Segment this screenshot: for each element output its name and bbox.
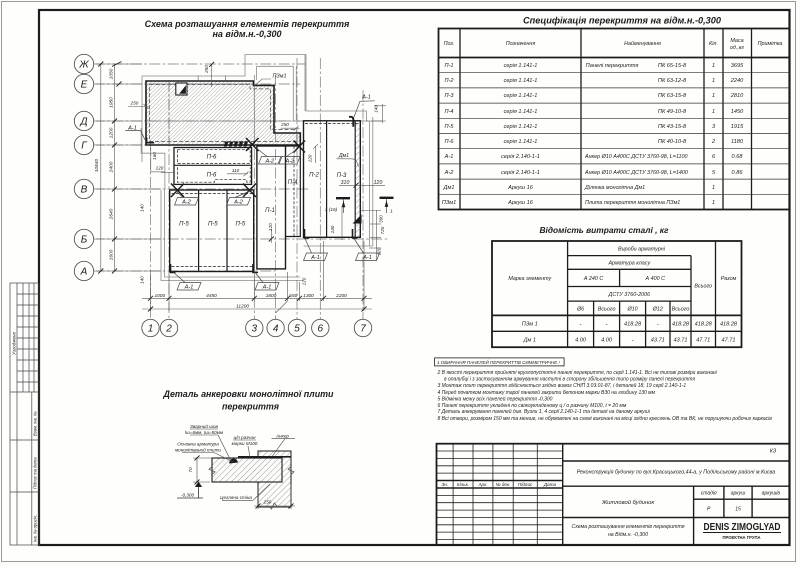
svg-text:250: 250 bbox=[280, 122, 289, 127]
svg-text:серія 2.140-1-1: серія 2.140-1-1 bbox=[501, 170, 540, 176]
svg-text:А-1: А-1 bbox=[262, 285, 272, 291]
svg-text:ПРОЕКТНА ГРУПА: ПРОЕКТНА ГРУПА bbox=[723, 535, 761, 540]
svg-text:1: 1 bbox=[712, 93, 715, 99]
svg-text:А-2: А-2 bbox=[444, 170, 455, 176]
svg-text:390: 390 bbox=[379, 215, 384, 223]
svg-text:серія 1.141-1: серія 1.141-1 bbox=[504, 93, 538, 99]
svg-text:43.71: 43.71 bbox=[651, 338, 665, 344]
svg-text:ПК 49-10-8: ПК 49-10-8 bbox=[658, 109, 687, 115]
svg-text:1300: 1300 bbox=[303, 293, 314, 299]
svg-text:ДСТУ 3760-2006: ДСТУ 3760-2006 bbox=[608, 292, 651, 298]
svg-text:6 Панелі перекриття укладені: 6 Панелі перекриття укладені по свіжоукл… bbox=[438, 403, 627, 409]
svg-text:П-1: П-1 bbox=[444, 63, 453, 69]
svg-text:№ док.: № док. bbox=[496, 482, 511, 487]
svg-text:4450: 4450 bbox=[206, 293, 217, 299]
svg-text:П-6: П-6 bbox=[207, 173, 217, 179]
svg-text:4 Перед початком монтажу таро: 4 Перед початком монтажу тарої панелей з… bbox=[438, 389, 656, 396]
svg-text:160: 160 bbox=[152, 152, 157, 160]
svg-text:од.,кг: од.,кг bbox=[730, 45, 745, 51]
svg-text:110: 110 bbox=[232, 168, 240, 173]
svg-text:4.00: 4.00 bbox=[575, 338, 587, 344]
svg-text:3: 3 bbox=[252, 324, 258, 335]
svg-text:П-2: П-2 bbox=[444, 78, 454, 84]
svg-text:А-2: А-2 bbox=[181, 200, 192, 206]
svg-text:140: 140 bbox=[140, 204, 145, 212]
svg-text:1: 1 bbox=[712, 200, 715, 206]
svg-text:Арк.: Арк. bbox=[477, 482, 487, 487]
svg-text:ПК 40-10-8: ПК 40-10-8 bbox=[658, 139, 687, 145]
svg-text:418.28: 418.28 bbox=[624, 322, 642, 328]
svg-text:А 240 С: А 240 С bbox=[583, 276, 604, 282]
svg-text:1: 1 bbox=[712, 109, 715, 115]
svg-text:-: - bbox=[632, 338, 634, 344]
svg-text:120: 120 bbox=[301, 277, 306, 285]
svg-text:-: - bbox=[606, 322, 608, 328]
svg-text:Реконструкція будинку по вул.К: Реконструкція будинку по вул.Красицького… bbox=[577, 469, 776, 476]
svg-text:монолітваной плити: монолітваной плити bbox=[175, 447, 221, 453]
svg-text:в опалубці і з застосуванням а: в опалубці і з застосуванням армування н… bbox=[444, 377, 695, 383]
svg-text:70: 70 bbox=[188, 467, 193, 473]
svg-text:А-2: А-2 bbox=[284, 159, 295, 165]
svg-text:Ø10: Ø10 bbox=[626, 307, 637, 313]
svg-text:120: 120 bbox=[156, 166, 164, 171]
svg-text:ПЗм 1: ПЗм 1 bbox=[522, 322, 538, 328]
svg-text:на відм.н.-0,300: на відм.н.-0,300 bbox=[212, 29, 281, 39]
svg-text:1 ОБИРАННЯ ПАНЕЛЕЙ ПЕРЕКРИТТІ: 1 ОБИРАННЯ ПАНЕЛЕЙ ПЕРЕКРИТТІВ СИММЕТРИЧ… bbox=[437, 358, 561, 365]
svg-text:Інв. № оригін.: Інв. № оригін. bbox=[33, 515, 38, 542]
svg-text:П-5: П-5 bbox=[444, 124, 454, 130]
svg-text:Маса: Маса bbox=[730, 38, 743, 44]
svg-text:120: 120 bbox=[268, 223, 273, 231]
svg-text:2640: 2640 bbox=[108, 208, 114, 220]
svg-text:1600: 1600 bbox=[108, 249, 114, 260]
svg-text:В: В bbox=[81, 185, 88, 196]
svg-text:47.71: 47.71 bbox=[722, 338, 736, 344]
svg-text:А: А bbox=[80, 267, 88, 278]
svg-text:П-5: П-5 bbox=[236, 222, 246, 228]
svg-text:8 Всі отвори, розміром 150 мм: 8 Всі отвори, розміром 150 мм та менше, … bbox=[438, 416, 773, 422]
svg-text:120: 120 bbox=[377, 247, 382, 255]
svg-text:ПК 63-12-8: ПК 63-12-8 bbox=[658, 78, 687, 84]
svg-text:А-1: А-1 bbox=[361, 95, 371, 101]
svg-text:3695: 3695 bbox=[731, 63, 744, 69]
svg-text:Схема розташуання елементів пе: Схема розташуання елементів перекриття bbox=[145, 19, 350, 29]
svg-text:1: 1 bbox=[390, 209, 393, 215]
svg-text:Примітка: Примітка bbox=[758, 41, 783, 47]
svg-text:lш=6мм, Іш=50мм: lш=6мм, Іш=50мм bbox=[185, 430, 224, 435]
svg-text:7 Деталь анкерування панелей: 7 Деталь анкерування панелей див. Вузли … bbox=[438, 408, 651, 415]
svg-text:серія 2.140-1-1: серія 2.140-1-1 bbox=[501, 154, 540, 160]
svg-text:П-6: П-6 bbox=[444, 139, 454, 145]
svg-text:0.86: 0.86 bbox=[732, 170, 744, 176]
svg-text:1000: 1000 bbox=[154, 293, 165, 299]
svg-text:5: 5 bbox=[294, 324, 300, 335]
svg-text:0.68: 0.68 bbox=[732, 154, 744, 160]
svg-text:1050: 1050 bbox=[108, 68, 114, 79]
svg-text:2200: 2200 bbox=[335, 293, 347, 299]
svg-text:6: 6 bbox=[318, 324, 324, 335]
svg-text:1: 1 bbox=[712, 78, 715, 84]
svg-text:Разом: Разом bbox=[721, 276, 737, 282]
svg-text:Дм 1: Дм 1 bbox=[523, 338, 536, 344]
svg-text:Зварний шов: Зварний шов bbox=[190, 423, 219, 429]
svg-text:аркуш: аркуш bbox=[731, 491, 746, 497]
svg-text:47.71: 47.71 bbox=[696, 338, 710, 344]
svg-text:Житловой будинок: Житловой будинок bbox=[601, 499, 655, 506]
svg-text:П-4: П-4 bbox=[288, 180, 298, 186]
svg-text:Б: Б bbox=[81, 235, 88, 246]
svg-text:серія 1.141-1: серія 1.141-1 bbox=[504, 63, 538, 69]
svg-text:1 (16): 1 (16) bbox=[325, 207, 338, 213]
svg-text:Поз.: Поз. bbox=[444, 41, 455, 47]
svg-text:А-1: А-1 bbox=[184, 285, 194, 291]
svg-text:П-2: П-2 bbox=[309, 173, 319, 179]
svg-text:П-5: П-5 bbox=[208, 222, 218, 228]
svg-text:А-2: А-2 bbox=[264, 159, 275, 165]
svg-text:ПЗм1: ПЗм1 bbox=[442, 200, 456, 206]
svg-text:1: 1 bbox=[712, 185, 715, 191]
svg-text:Ж: Ж bbox=[78, 60, 89, 71]
svg-text:418.28: 418.28 bbox=[720, 322, 738, 328]
svg-text:43.71: 43.71 bbox=[674, 338, 688, 344]
svg-text:Позначення: Позначення bbox=[506, 41, 536, 47]
svg-text:DENIS ZIMOGLYAD: DENIS ZIMOGLYAD bbox=[704, 522, 781, 533]
svg-text:Дм1: Дм1 bbox=[443, 185, 455, 191]
svg-text:-: - bbox=[580, 322, 582, 328]
svg-text:серія 1.141-1: серія 1.141-1 bbox=[504, 139, 538, 145]
svg-text:Схема розташування елементів п: Схема розташування елементів перекриття bbox=[571, 524, 684, 530]
svg-text:Всього: Всього bbox=[598, 307, 616, 313]
svg-text:Цегляна стіна: Цегляна стіна bbox=[220, 495, 252, 500]
svg-text:3 Монтаж плит перекриття здій: 3 Монтаж плит перекриття здійснюється зг… bbox=[438, 382, 687, 389]
svg-text:А-1: А-1 bbox=[362, 255, 372, 261]
svg-text:250: 250 bbox=[130, 101, 139, 106]
svg-text:Узгоджено: Узгоджено bbox=[12, 331, 17, 355]
svg-text:650: 650 bbox=[289, 293, 297, 299]
svg-text:-0,300: -0,300 bbox=[181, 493, 194, 498]
svg-text:10840: 10840 bbox=[94, 159, 100, 173]
svg-text:А-1: А-1 bbox=[444, 154, 454, 160]
svg-text:1200: 1200 bbox=[108, 127, 114, 138]
svg-text:Основна арматура: Основна арматура bbox=[177, 442, 219, 447]
svg-text:720: 720 bbox=[380, 226, 385, 234]
svg-text:418.28: 418.28 bbox=[695, 322, 713, 328]
svg-text:140: 140 bbox=[330, 225, 335, 233]
svg-text:А-2: А-2 bbox=[233, 200, 244, 206]
svg-text:Е: Е bbox=[81, 80, 88, 91]
svg-text:аркушів: аркушів bbox=[762, 491, 781, 497]
svg-text:2: 2 bbox=[165, 324, 172, 335]
svg-text:Арматура класу: Арматура класу bbox=[607, 261, 650, 267]
svg-text:Ділянка монолітна Дм1: Ділянка монолітна Дм1 bbox=[584, 185, 645, 191]
svg-text:Марка элементу: Марка элементу bbox=[508, 276, 551, 282]
svg-text:11200: 11200 bbox=[236, 304, 249, 310]
svg-text:Зн.: Зн. bbox=[441, 482, 448, 487]
svg-text:Аркуш 16: Аркуш 16 bbox=[507, 185, 534, 191]
svg-text:Деталь анкеровки монолітної пл: Деталь анкеровки монолітної плити bbox=[163, 389, 334, 399]
svg-text:Специфікація перекриття на від: Специфікація перекриття на відм.н.-0,300 bbox=[523, 16, 722, 26]
svg-text:П-3: П-3 bbox=[337, 173, 347, 179]
svg-text:КЗ: КЗ bbox=[770, 449, 777, 455]
svg-text:П-6: П-6 bbox=[207, 155, 217, 161]
svg-text:Взам. інв. №: Взам. інв. № bbox=[33, 411, 38, 436]
svg-text:250: 250 bbox=[204, 65, 209, 74]
svg-text:Дата: Дата bbox=[543, 482, 557, 487]
svg-text:Д: Д bbox=[79, 117, 87, 128]
svg-text:1: 1 bbox=[712, 63, 715, 69]
svg-text:1915: 1915 bbox=[731, 124, 744, 130]
svg-text:2240: 2240 bbox=[730, 78, 744, 84]
svg-text:140: 140 bbox=[139, 276, 144, 284]
svg-text:серія 1.141-1: серія 1.141-1 bbox=[504, 78, 538, 84]
svg-text:2400: 2400 bbox=[108, 161, 114, 173]
svg-text:1180: 1180 bbox=[731, 139, 744, 145]
svg-text:П-1: П-1 bbox=[265, 208, 275, 214]
svg-text:А 400 С: А 400 С bbox=[645, 276, 666, 282]
svg-text:Анкер Ø10 А400С ДСТУ 3760-98,: Анкер Ø10 А400С ДСТУ 3760-98, L=1100 bbox=[584, 154, 688, 160]
svg-text:П-4: П-4 bbox=[444, 109, 453, 115]
svg-text:Підпис та дата: Підпис та дата bbox=[33, 457, 38, 489]
svg-text:на Відм.н. -0,300: на Відм.н. -0,300 bbox=[608, 532, 648, 538]
svg-text:Ø6: Ø6 bbox=[576, 307, 584, 313]
svg-text:Аркуш 16: Аркуш 16 bbox=[507, 200, 534, 206]
svg-text:2 В якості перекриття прийнят: 2 В якості перекриття прийняті круглопус… bbox=[437, 369, 718, 376]
svg-text:4: 4 bbox=[273, 324, 279, 335]
svg-text:ПК 43-15-8: ПК 43-15-8 bbox=[658, 124, 687, 130]
svg-text:Кільк.: Кільк. bbox=[457, 482, 469, 487]
svg-text:П-3: П-3 bbox=[444, 93, 454, 99]
svg-text:-: - bbox=[657, 322, 659, 328]
svg-text:5 Відмінка межу всіх панелей: 5 Відмінка межу всіх панелей перекриття … bbox=[438, 395, 553, 402]
svg-text:250: 250 bbox=[263, 500, 272, 505]
svg-text:Найменування: Найменування bbox=[624, 40, 661, 47]
svg-text:Вироби арматурні: Вироби арматурні bbox=[618, 247, 666, 253]
svg-text:ПЗм1: ПЗм1 bbox=[273, 74, 287, 80]
svg-text:перекриття: перекриття bbox=[222, 402, 280, 412]
svg-text:П-5: П-5 bbox=[179, 222, 189, 228]
svg-text:Плита перекриття монолітна ПЗм: Плита перекриття монолітна ПЗм1 bbox=[585, 200, 680, 206]
svg-text:Дм1: Дм1 bbox=[338, 153, 349, 159]
svg-text:Всього: Всього bbox=[672, 307, 690, 313]
svg-text:7: 7 bbox=[360, 324, 366, 335]
svg-text:Ø12: Ø12 bbox=[652, 307, 663, 313]
svg-text:2810: 2810 bbox=[730, 93, 744, 99]
svg-text:серія 1.141-1: серія 1.141-1 bbox=[504, 109, 538, 115]
svg-text:ПК 65-15-8: ПК 65-15-8 bbox=[658, 63, 687, 69]
svg-text:А-1: А-1 bbox=[310, 255, 320, 261]
svg-text:1950: 1950 bbox=[108, 97, 114, 108]
svg-text:ц/п разчин: ц/п разчин bbox=[233, 435, 256, 440]
svg-text:Панелі перекриття: Панелі перекриття bbox=[586, 63, 639, 69]
svg-text:1: 1 bbox=[148, 324, 154, 335]
svg-text:120: 120 bbox=[308, 154, 313, 162]
svg-text:стадія: стадія bbox=[701, 491, 717, 497]
svg-text:Кіл.: Кіл. bbox=[709, 41, 718, 47]
svg-text:Відомість витрати сталі , кг: Відомість витрати сталі , кг bbox=[540, 225, 670, 235]
svg-text:Всього: Всього bbox=[694, 284, 712, 290]
svg-text:серія 1.141-1: серія 1.141-1 bbox=[504, 124, 538, 130]
svg-text:Анкер: Анкер bbox=[275, 434, 289, 439]
svg-text:Анкер Ø10 А400С ДСТУ 3760-98,: Анкер Ø10 А400С ДСТУ 3760-98, L=1400 bbox=[584, 170, 688, 176]
svg-text:1450: 1450 bbox=[731, 109, 744, 115]
svg-text:418.28: 418.28 bbox=[672, 322, 690, 328]
svg-text:марки М100: марки М100 bbox=[232, 441, 258, 446]
svg-text:ПК 63-15-8: ПК 63-15-8 bbox=[658, 93, 687, 99]
svg-text:Підпис: Підпис bbox=[518, 482, 533, 487]
svg-text:1800: 1800 bbox=[266, 293, 277, 299]
svg-text:15: 15 bbox=[735, 507, 741, 513]
svg-text:4.00: 4.00 bbox=[601, 338, 613, 344]
